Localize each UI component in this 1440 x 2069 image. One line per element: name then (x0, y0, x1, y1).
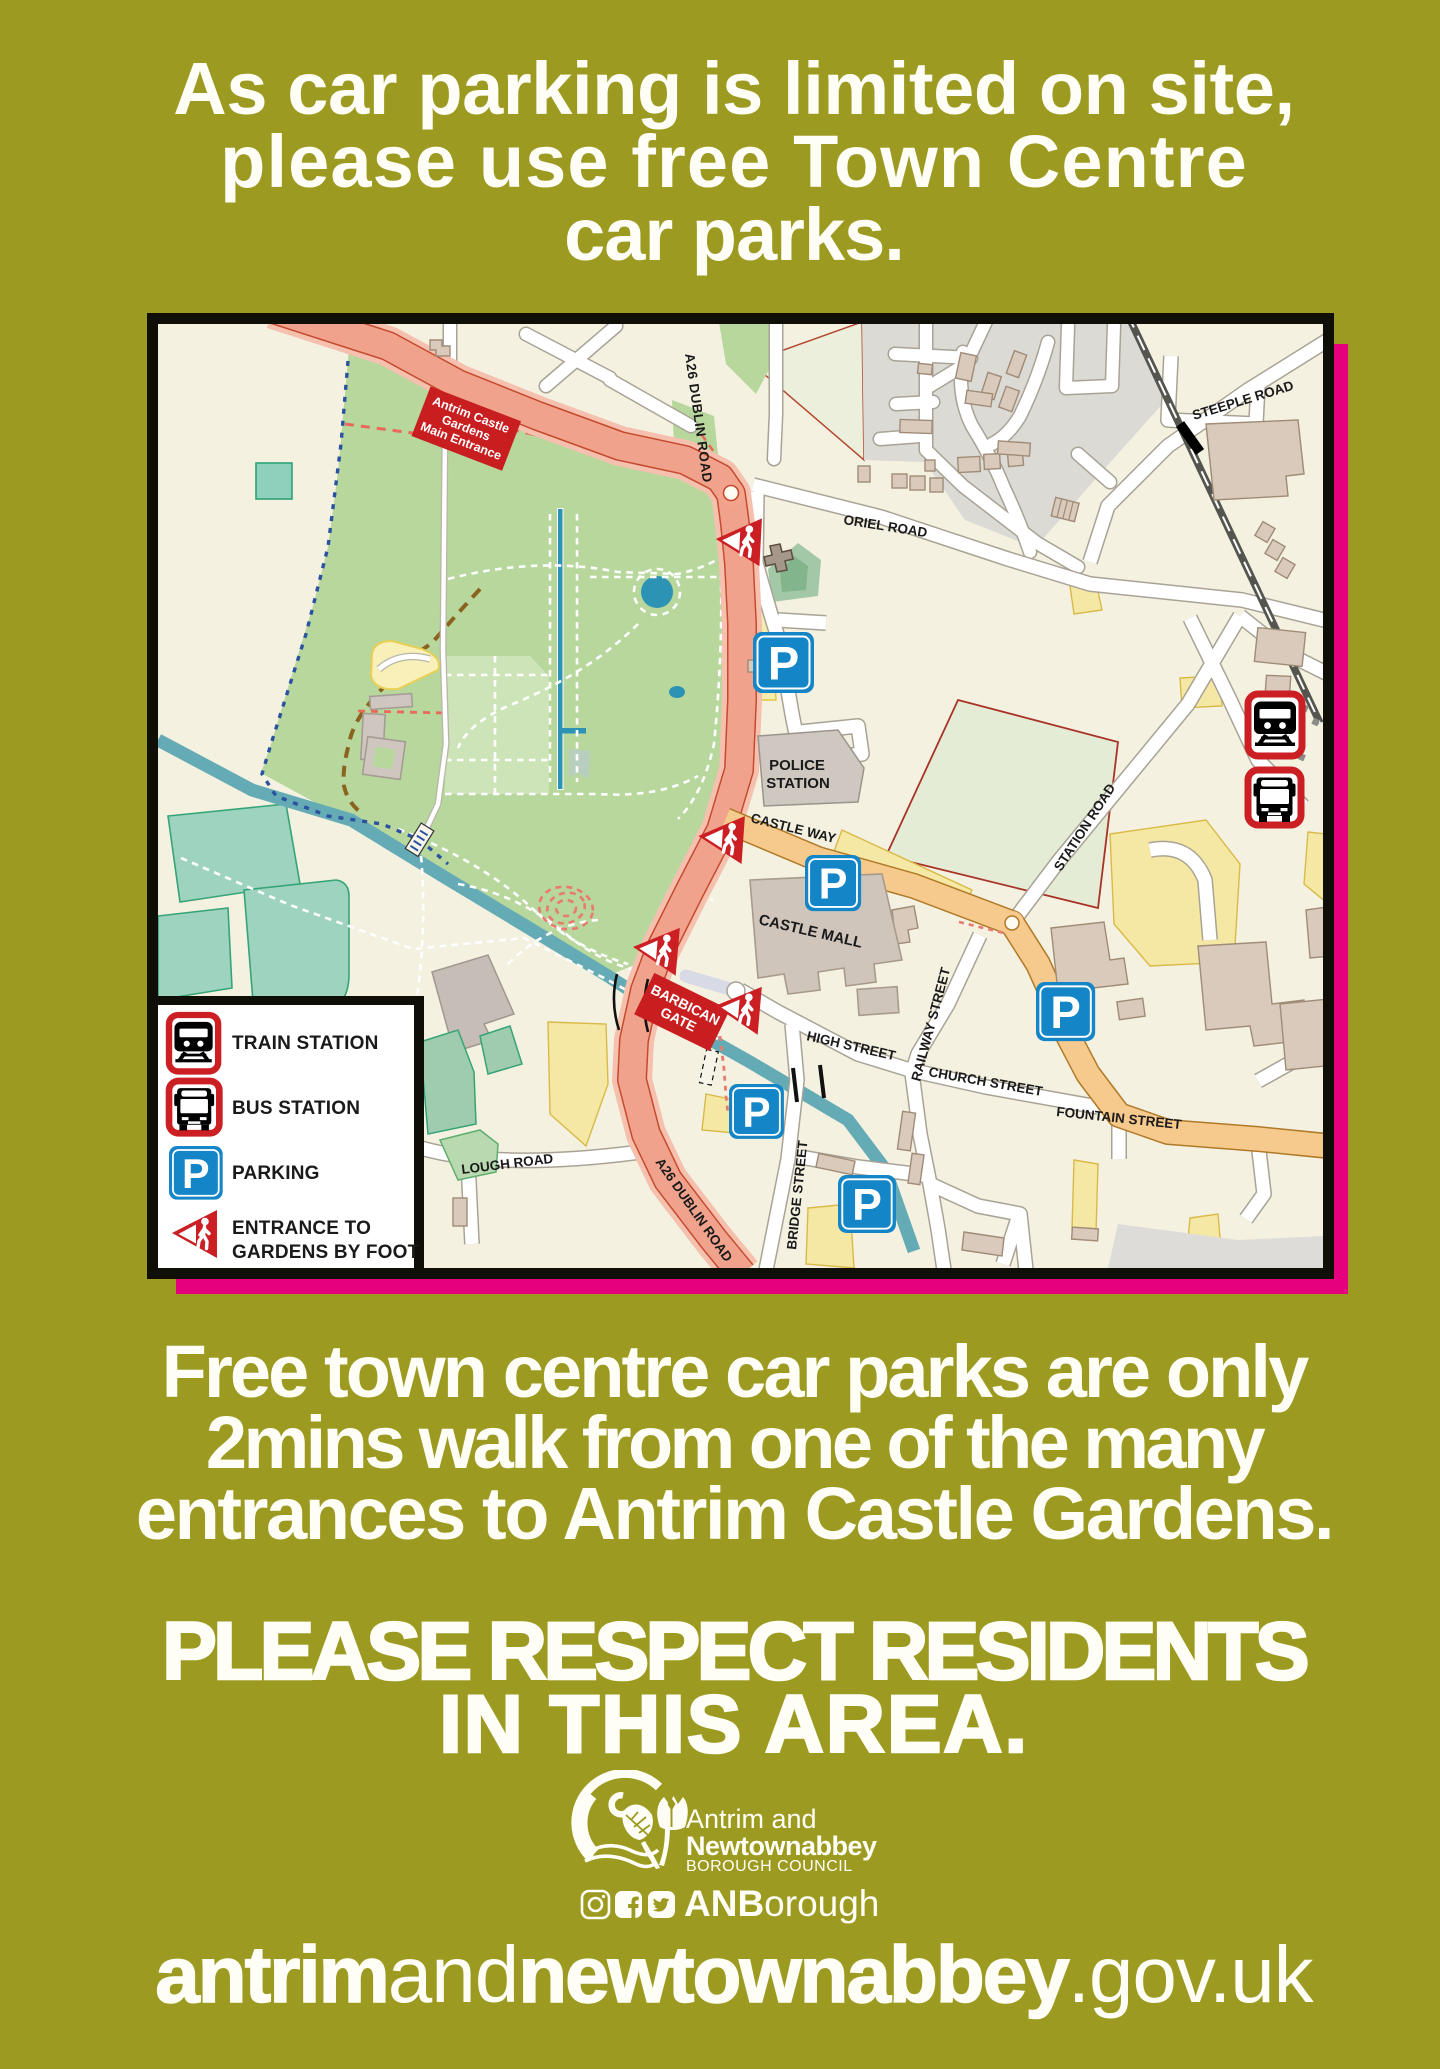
svg-text:Antrim and: Antrim and (686, 1804, 817, 1834)
svg-text:TRAIN STATION: TRAIN STATION (232, 1033, 379, 1054)
svg-text:POLICE: POLICE (769, 757, 825, 774)
svg-text:ENTRANCE TO: ENTRANCE TO (232, 1218, 371, 1239)
svg-text:GARDENS BY FOOT: GARDENS BY FOOT (232, 1242, 420, 1263)
svg-text:STATION: STATION (766, 775, 830, 792)
svg-text:ANBorough: ANBorough (684, 1886, 879, 1924)
svg-text:Newtownabbey: Newtownabbey (686, 1831, 877, 1861)
svg-text:BUS STATION: BUS STATION (232, 1098, 360, 1119)
svg-text:PARKING: PARKING (232, 1163, 320, 1184)
svg-text:BOROUGH COUNCIL: BOROUGH COUNCIL (686, 1858, 853, 1875)
